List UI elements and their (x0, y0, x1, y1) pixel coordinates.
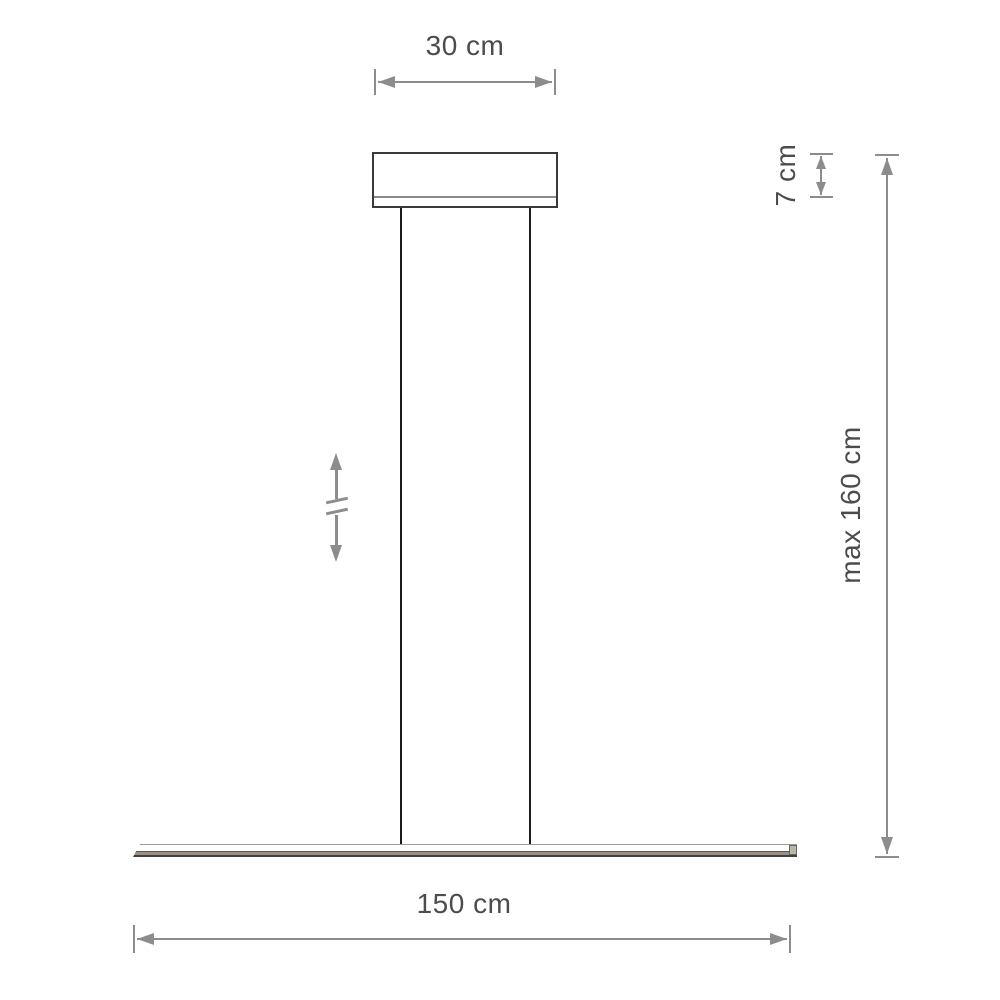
dimension-line (886, 158, 888, 854)
lamp-bar (133, 844, 797, 857)
dimension-tick (554, 69, 556, 95)
max-height-label: max 160 cm (771, 425, 931, 585)
dimension-line (137, 938, 787, 940)
arrow-left-icon (378, 76, 395, 88)
arrow-shaft (335, 515, 338, 545)
arrow-up-icon (881, 158, 893, 175)
arrow-left-icon (137, 933, 154, 945)
arrow-right-icon (535, 76, 552, 88)
arrow-down-icon (330, 545, 342, 562)
dimension-diagram: 30 cm 7 cm max 160 cm (0, 0, 1000, 1000)
arrow-down-icon (881, 837, 893, 854)
fixture-length-label: 150 cm (364, 888, 564, 920)
max-height-dimension (875, 154, 899, 858)
canopy-width-label: 30 cm (365, 30, 565, 62)
lamp-bar-front-edge (133, 851, 797, 857)
ceiling-canopy (372, 152, 558, 208)
canopy-width-dimension (374, 69, 556, 95)
arrow-up-icon (816, 156, 826, 169)
arrow-right-icon (770, 933, 787, 945)
break-mark (326, 497, 348, 505)
arrow-down-icon (816, 182, 826, 195)
dimension-tick (810, 153, 833, 155)
suspension-wire-left (400, 208, 402, 845)
dimension-line (378, 81, 552, 83)
dimension-tick (875, 856, 899, 858)
dimension-tick (810, 196, 833, 198)
fixture-length-dimension (133, 925, 791, 953)
suspension-wire-right (529, 208, 531, 845)
dimension-tick (374, 69, 376, 95)
dimension-tick (875, 154, 899, 156)
arrow-shaft (335, 467, 338, 499)
height-adjustable-icon (324, 453, 350, 559)
lamp-bar-end-cap (789, 845, 797, 855)
dimension-tick (133, 925, 135, 953)
dimension-tick (789, 925, 791, 953)
canopy-inner-line (374, 196, 556, 198)
canopy-height-dimension (810, 153, 833, 198)
